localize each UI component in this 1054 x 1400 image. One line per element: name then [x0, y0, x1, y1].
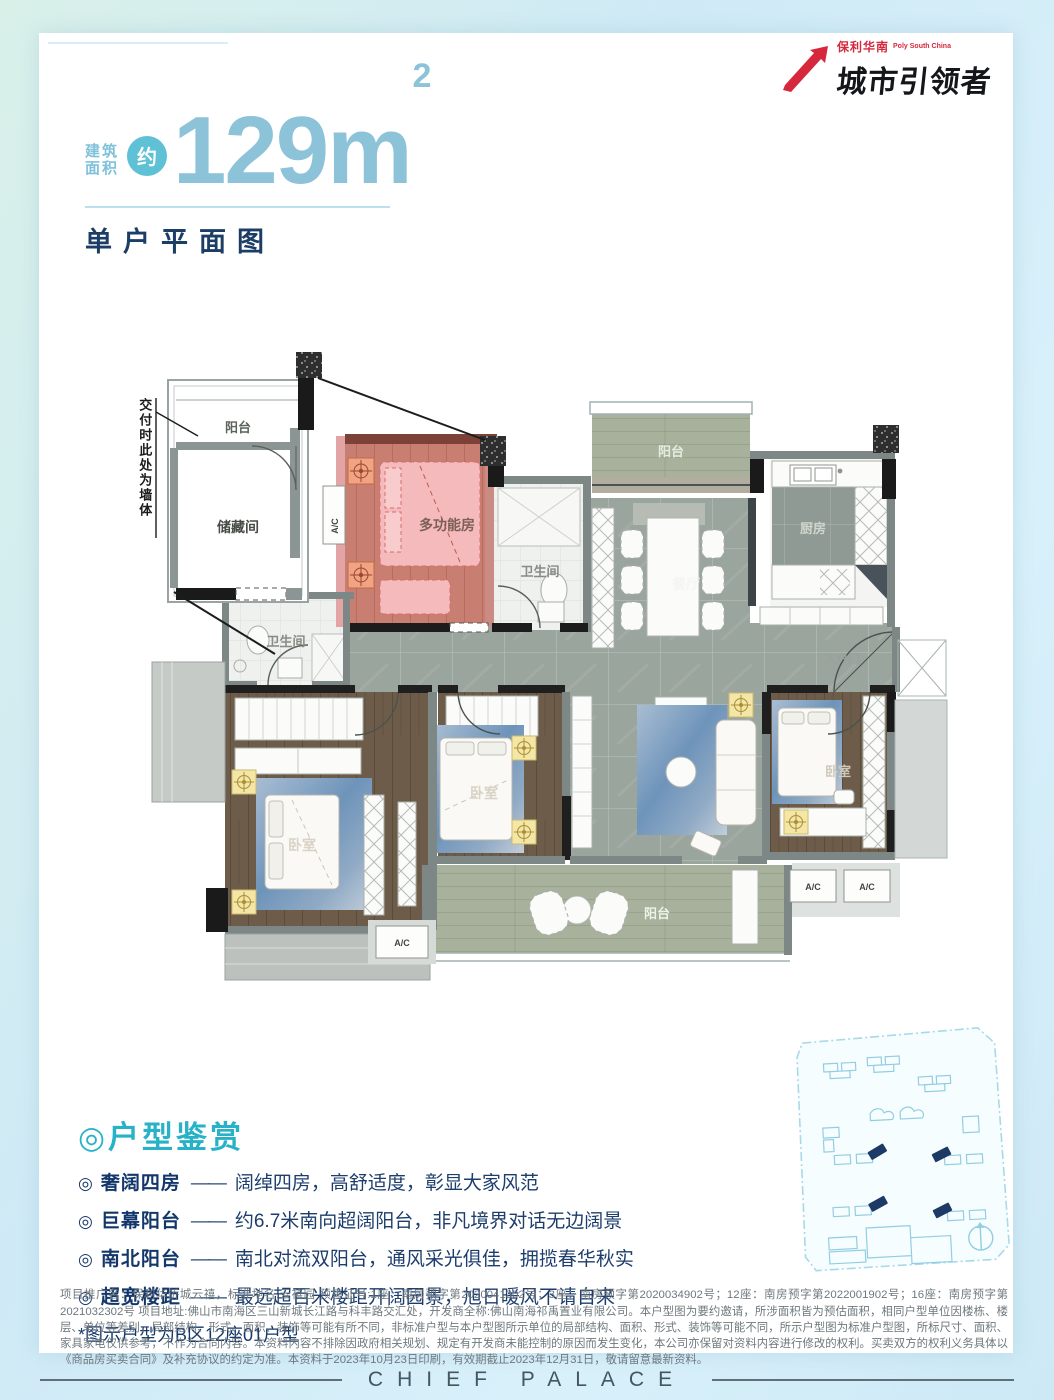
- title-block: 建筑 面积 约 129m2 单户平面图: [85, 110, 505, 259]
- bedroom-2: [432, 692, 538, 853]
- storage-inset: [168, 378, 314, 602]
- page-title: 单户平面图: [85, 220, 505, 259]
- area-superscript: 2: [413, 57, 430, 95]
- label-kitchen: 厨房: [800, 521, 826, 536]
- brand-name-en: Poly South China: [893, 43, 951, 50]
- floor-plan: 交付时此处为墙体: [140, 340, 960, 1000]
- brand-logo: 保利华南 Poly South China 城市引领者: [781, 38, 992, 101]
- label-balcony-bottom: 阳台: [644, 906, 670, 921]
- footer-rule-right: [712, 1379, 1014, 1381]
- brand-wordmark: 城市引领者: [835, 57, 995, 101]
- legal-disclaimer: 项目推广名：保利华侨城云禧，标准地名:云禧园 预售证号:1座：南房预字第2020…: [60, 1287, 1008, 1368]
- label-bedroom-1: 卧室: [288, 837, 316, 853]
- label-ac-bottom: A/C: [394, 938, 410, 948]
- label-bath-top: 卫生间: [520, 564, 559, 579]
- floor-plan-drawing: 阳台 储藏间 多功能房 卫生间 阳台 餐厅 厨房 入户门 卫生间 卧室 卧室 卧…: [140, 340, 960, 1000]
- feature-item: ◎ 奢阔四房 —— 阔绰四房，高舒适度，彰显大家风范: [78, 1168, 638, 1195]
- dining-room: [592, 503, 724, 648]
- bullseye-icon: ◎: [78, 1250, 93, 1270]
- label-inset-balcony: 阳台: [225, 420, 251, 435]
- approx-badge: 约: [127, 136, 167, 176]
- features-heading: ◎户型鉴赏: [78, 1112, 638, 1157]
- label-ac-left: A/C: [330, 518, 340, 534]
- label-bedroom-3: 卧室: [825, 764, 851, 779]
- bullseye-icon: ◎: [78, 1212, 93, 1232]
- label-dining: 餐厅: [671, 576, 700, 592]
- arrow-up-icon: [781, 44, 833, 94]
- feature-item: ◎ 巨幕阳台 —— 约6.7米南向超阔阳台，非凡境界对话无边阔景: [78, 1206, 638, 1233]
- feature-item: ◎ 南北阳台 —— 南北对流双阳台，通风采光俱佳，拥揽春华秋实: [78, 1244, 638, 1271]
- title-divider: [85, 206, 390, 208]
- area-value: 129m2: [173, 110, 427, 192]
- label-balcony-top: 阳台: [658, 444, 684, 459]
- footer-rule-left: [40, 1379, 342, 1381]
- label-ac-right-1: A/C: [805, 882, 821, 892]
- brand-name-cn: 保利华南: [837, 38, 889, 55]
- site-plan: [788, 1023, 1016, 1276]
- footer: CHIEF PALACE: [0, 1368, 1054, 1392]
- label-entry: 入户门: [824, 651, 860, 666]
- label-bedroom-2: 卧室: [470, 785, 498, 801]
- label-ac-right-2: A/C: [859, 882, 875, 892]
- label-storage: 储藏间: [216, 519, 259, 535]
- area-label: 建筑 面积: [85, 143, 119, 178]
- footer-wordmark: CHIEF PALACE: [368, 1368, 686, 1392]
- delivery-wall-note: 交付时此处为墙体: [137, 398, 151, 548]
- label-multi-room: 多功能房: [419, 517, 475, 533]
- label-bath-left: 卫生间: [266, 634, 305, 649]
- decor-line: [48, 42, 228, 44]
- bullseye-icon: ◎: [78, 1174, 93, 1194]
